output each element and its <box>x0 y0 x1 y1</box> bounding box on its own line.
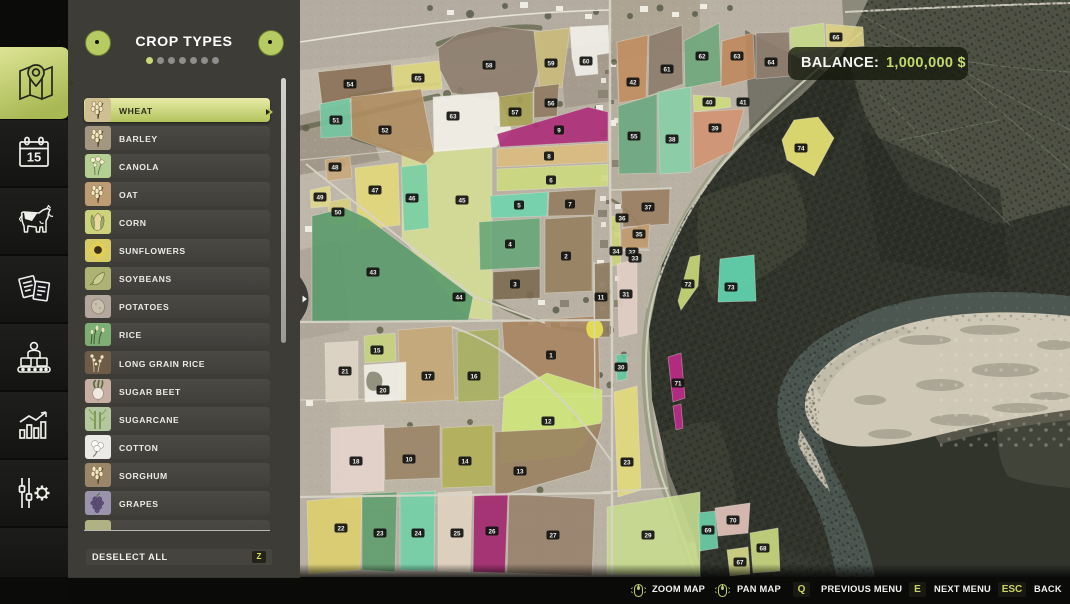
svg-text:3: 3 <box>513 281 517 288</box>
svg-text:66: 66 <box>832 34 840 41</box>
svg-text:38: 38 <box>668 136 676 143</box>
svg-text:5: 5 <box>517 202 521 209</box>
svg-text:8: 8 <box>547 153 551 160</box>
svg-text:17: 17 <box>424 373 432 380</box>
svg-text:35: 35 <box>635 231 643 238</box>
svg-text:2: 2 <box>564 253 568 260</box>
svg-text:12: 12 <box>544 418 552 425</box>
svg-text:15: 15 <box>27 150 41 165</box>
svg-text:30: 30 <box>617 364 625 371</box>
svg-text:40: 40 <box>705 99 713 106</box>
svg-text:56: 56 <box>547 100 555 107</box>
svg-text:42: 42 <box>629 79 637 86</box>
svg-text:44: 44 <box>455 294 463 301</box>
svg-text:13: 13 <box>516 468 524 475</box>
svg-text:41: 41 <box>739 99 747 106</box>
svg-text:36: 36 <box>618 215 626 222</box>
svg-text:63: 63 <box>733 53 741 60</box>
svg-text:74: 74 <box>797 145 805 152</box>
svg-text:43: 43 <box>369 269 377 276</box>
svg-text:65: 65 <box>414 75 422 82</box>
svg-text:24: 24 <box>414 530 422 537</box>
svg-text:31: 31 <box>622 291 630 298</box>
svg-text:25: 25 <box>453 530 461 537</box>
svg-text:21: 21 <box>341 368 349 375</box>
svg-text:10: 10 <box>405 456 413 463</box>
svg-text:63: 63 <box>449 113 457 120</box>
svg-text:71: 71 <box>674 380 682 387</box>
svg-text:69: 69 <box>704 527 712 534</box>
svg-text:57: 57 <box>511 109 519 116</box>
svg-text:33: 33 <box>631 255 639 262</box>
svg-text:58: 58 <box>485 62 493 69</box>
svg-text:7: 7 <box>568 201 572 208</box>
svg-text:14: 14 <box>461 458 469 465</box>
svg-text:72: 72 <box>684 281 692 288</box>
svg-text:60: 60 <box>582 58 590 65</box>
svg-text:4: 4 <box>508 241 512 248</box>
svg-text:54: 54 <box>346 81 354 88</box>
svg-text:23: 23 <box>623 459 631 466</box>
svg-text:6: 6 <box>549 177 553 184</box>
svg-text:48: 48 <box>331 164 339 171</box>
svg-text:18: 18 <box>352 458 360 465</box>
svg-text:9: 9 <box>557 127 561 134</box>
svg-text:61: 61 <box>663 66 671 73</box>
svg-text:22: 22 <box>337 525 345 532</box>
svg-text:62: 62 <box>698 53 706 60</box>
svg-text:52: 52 <box>381 127 389 134</box>
svg-text:26: 26 <box>488 528 496 535</box>
svg-text:64: 64 <box>767 59 775 66</box>
svg-text:39: 39 <box>711 125 719 132</box>
svg-text:49: 49 <box>316 194 324 201</box>
svg-text:46: 46 <box>408 195 416 202</box>
svg-text:23: 23 <box>376 530 384 537</box>
svg-text:16: 16 <box>470 373 478 380</box>
svg-text:11: 11 <box>598 294 605 301</box>
svg-text:37: 37 <box>644 204 652 211</box>
svg-text:68: 68 <box>759 545 767 552</box>
svg-text:70: 70 <box>729 517 737 524</box>
svg-text:50: 50 <box>334 209 342 216</box>
svg-text:59: 59 <box>547 60 555 67</box>
svg-text:15: 15 <box>373 347 381 354</box>
svg-text:73: 73 <box>727 284 735 291</box>
svg-text:1: 1 <box>549 352 553 359</box>
svg-text:34: 34 <box>612 248 620 255</box>
svg-text:29: 29 <box>644 532 652 539</box>
svg-text:47: 47 <box>371 187 379 194</box>
svg-text:51: 51 <box>332 117 340 124</box>
svg-text:20: 20 <box>379 387 387 394</box>
svg-text:55: 55 <box>630 133 638 140</box>
svg-text:45: 45 <box>458 197 466 204</box>
svg-text:27: 27 <box>549 532 557 539</box>
